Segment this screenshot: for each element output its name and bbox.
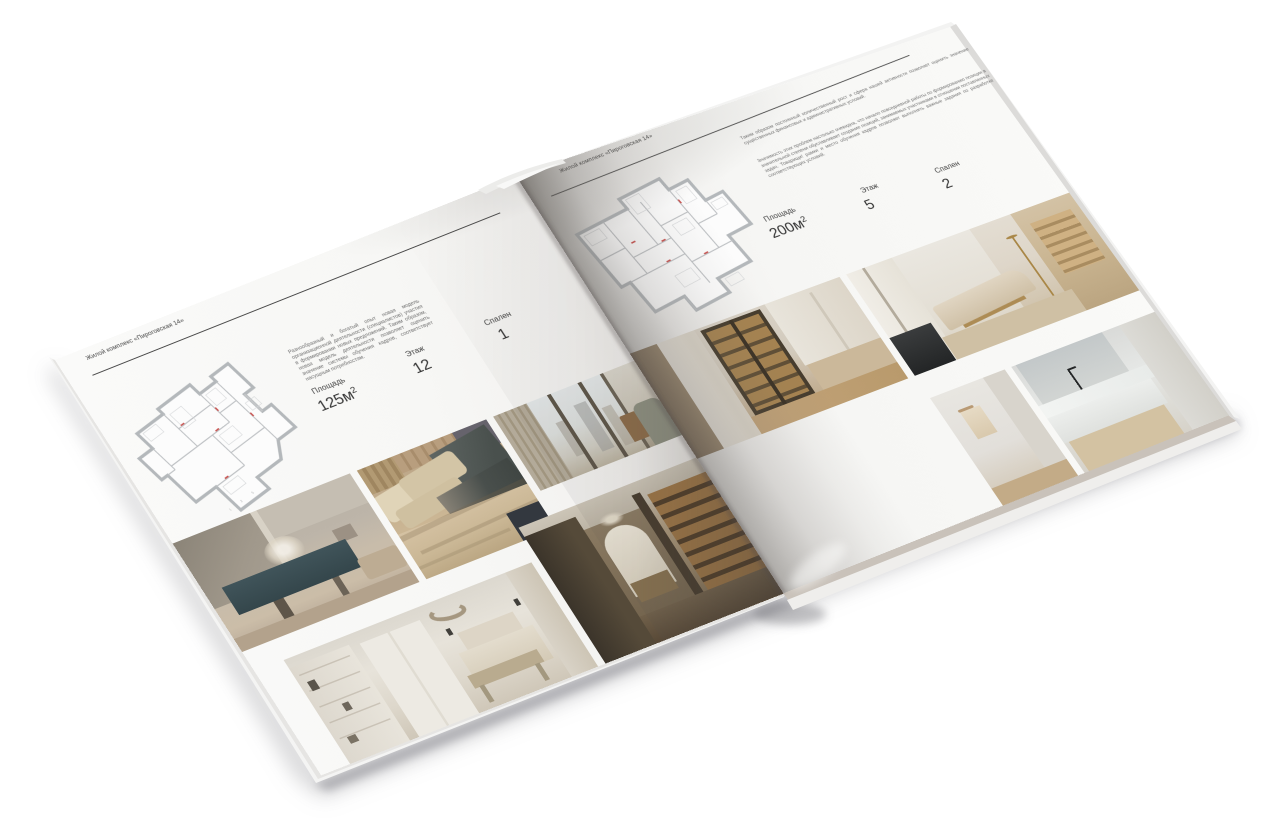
svg-text:1: 1 xyxy=(228,508,233,512)
